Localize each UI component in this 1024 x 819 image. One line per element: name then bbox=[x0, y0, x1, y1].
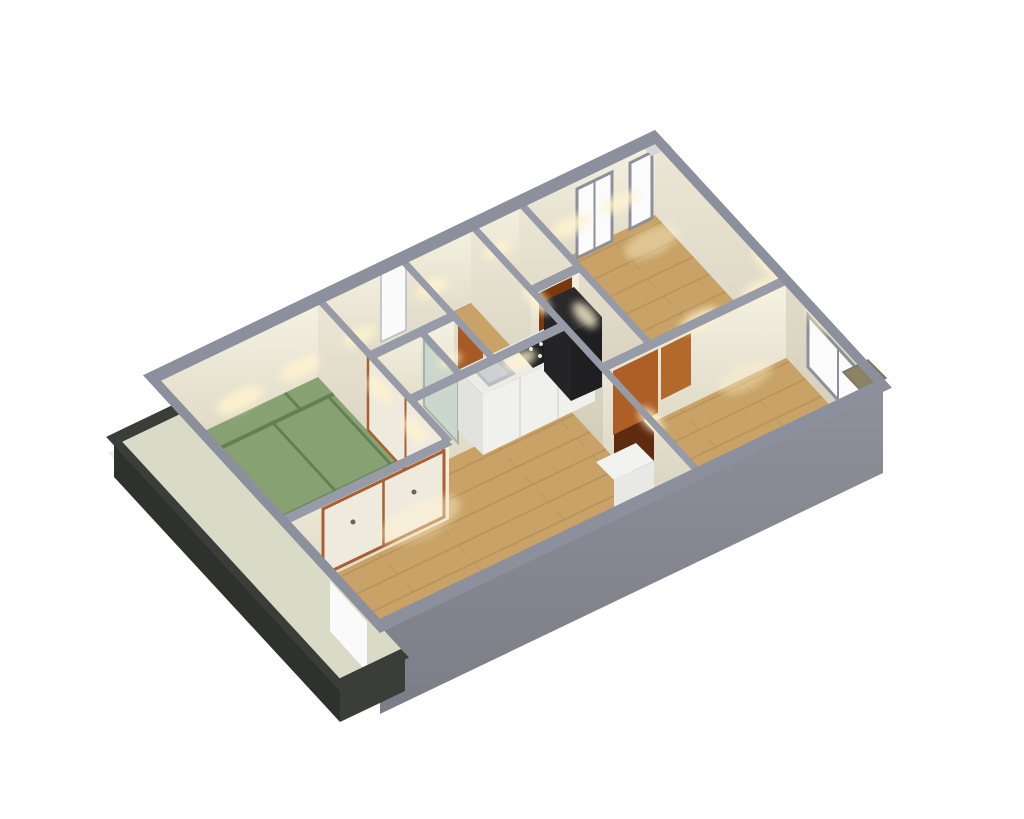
window-north-2 bbox=[630, 152, 652, 229]
closet-handle bbox=[412, 490, 417, 495]
front-door-opening bbox=[381, 262, 406, 342]
closet-handle bbox=[351, 520, 356, 525]
floorplan-svg bbox=[0, 0, 1024, 819]
burner-dot bbox=[538, 354, 542, 358]
floorplan-render bbox=[0, 0, 1024, 819]
